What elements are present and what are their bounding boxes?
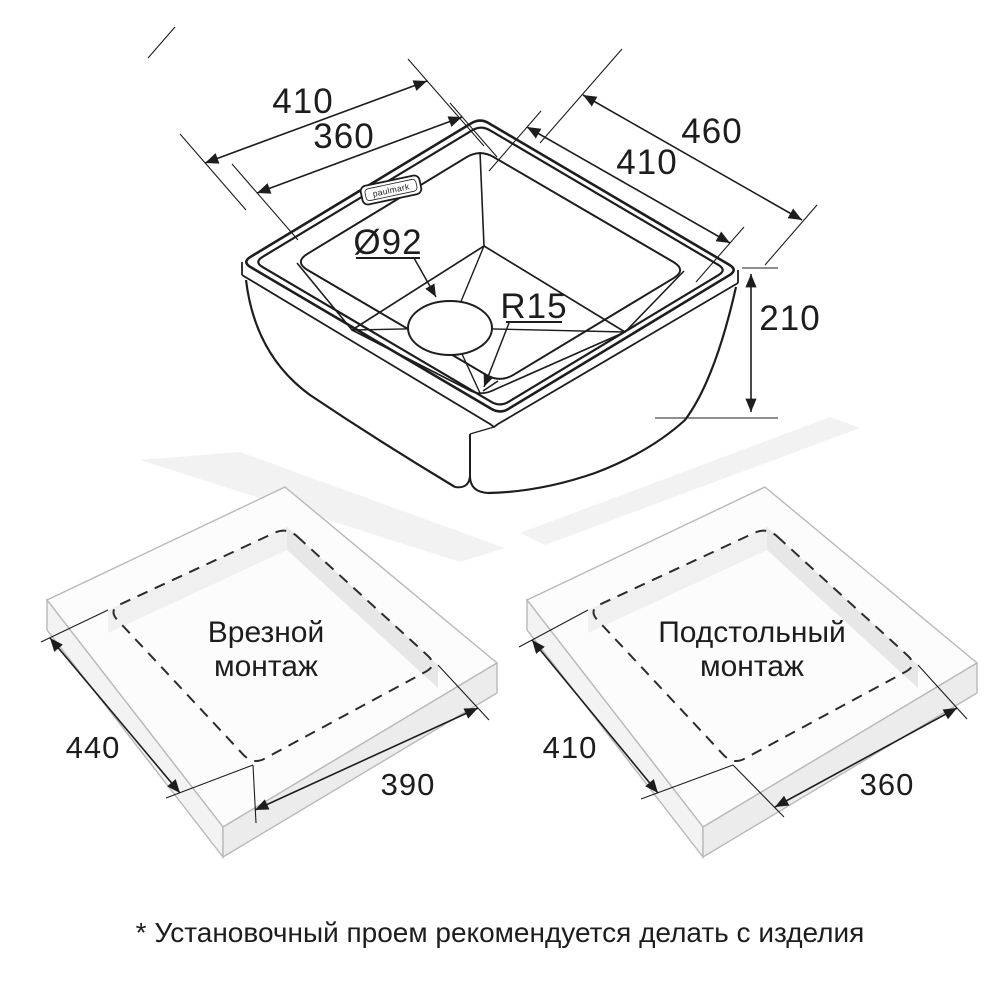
inset-dim-cut-width: 440 [66,730,121,765]
dim-bowl-length: 410 [616,143,677,182]
undermount-dim-cut-width: 410 [543,730,598,765]
dim-depth: 210 [759,299,820,338]
dim-outer-width: 410 [272,82,333,121]
diagram-canvas: paulmark [0,0,1000,1000]
ext-line [180,134,246,210]
drain-hole [408,301,492,355]
dim-outer-length: 460 [681,112,742,151]
sink-dimension-diagram: paulmark [0,0,1000,1000]
undermount-title-line2: монтаж [700,650,804,683]
undermount-dim-cut-length: 360 [860,767,915,802]
ext-line [540,49,622,143]
undermount-title-line1: Подстольный [658,616,846,649]
dim-bowl-width: 360 [313,117,374,156]
ext-line [232,164,298,240]
inset-title-line2: монтаж [214,650,318,683]
sink-isometric-view: paulmark [140,27,860,562]
inset-dim-cut-length: 390 [381,767,436,802]
dim-corner-radius: R15 [500,287,567,326]
inset-title-line1: Врезной [208,616,324,649]
dim-drain-diameter: Ø92 [353,223,422,262]
footnote: * Установочный проем рекомендуется делат… [136,917,865,948]
ext-line [148,27,175,58]
undermount-figure: Подстольный монтаж 410 360 [519,487,977,857]
